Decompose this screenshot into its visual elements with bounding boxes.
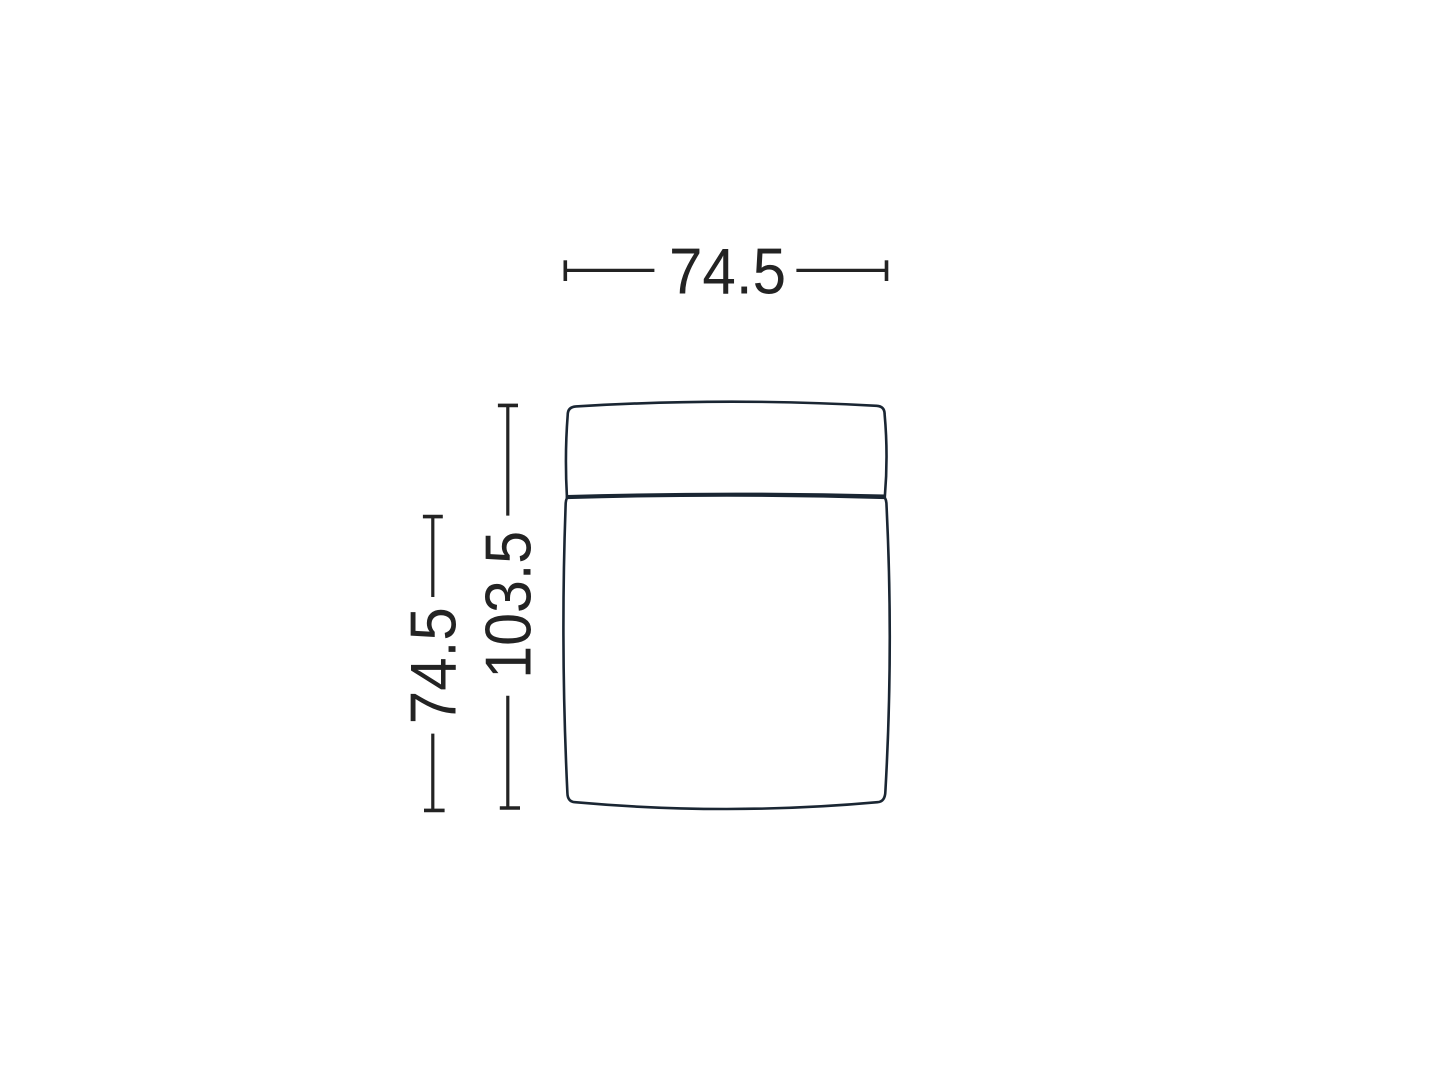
svg-text:74.5: 74.5 [669,234,786,307]
svg-text:103.5: 103.5 [472,531,545,679]
svg-text:74.5: 74.5 [397,607,470,724]
